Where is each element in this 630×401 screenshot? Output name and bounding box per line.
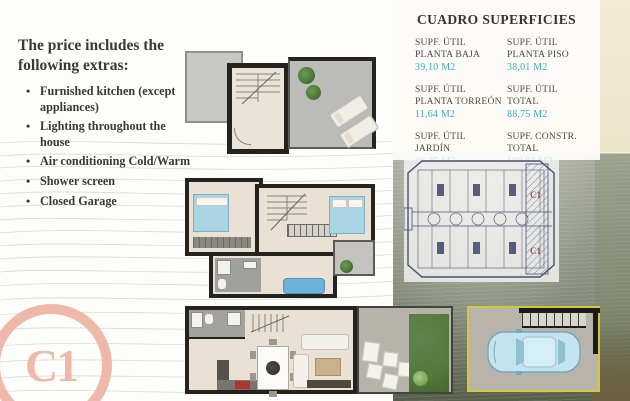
entry-bathroom xyxy=(189,310,245,339)
paver-tile xyxy=(382,351,398,367)
sink-icon xyxy=(243,261,257,269)
extras-item: Furnished kitchen (except appliances) xyxy=(26,84,194,115)
paver-tile xyxy=(366,363,383,380)
garage-wall xyxy=(593,308,598,354)
surface-cell-planta-piso: SUPF. ÚTIL PLANTA PISO 38,01 M2 xyxy=(507,37,595,73)
chair-icon xyxy=(269,391,277,397)
bath-and-hall xyxy=(209,252,337,298)
surfaces-table: SUPF. ÚTIL PLANTA BAJA 39,10 M2 SUPF. ÚT… xyxy=(393,28,600,167)
extras-item: Lighting throughout the house xyxy=(26,119,194,150)
surface-value: 39,10 M2 xyxy=(415,62,503,73)
car-icon xyxy=(486,329,582,375)
sofa-icon xyxy=(301,334,349,350)
tv-bench-icon xyxy=(307,380,351,388)
plant-icon xyxy=(298,67,315,84)
shower-icon xyxy=(217,260,231,275)
roof-terrace-right xyxy=(288,57,376,149)
floorplan-ground-floor xyxy=(185,302,457,396)
garden-court xyxy=(357,306,453,394)
chair-icon xyxy=(250,373,256,381)
garage-plan xyxy=(467,306,600,392)
door-arc-icon xyxy=(234,128,251,145)
extras-list: Furnished kitchen (except appliances) Li… xyxy=(18,84,194,209)
c1-logo: C1 xyxy=(0,304,112,401)
site-plan-unit-label: C1 xyxy=(530,246,541,256)
surfaces-table-panel: CUADRO SUPERFICIES SUPF. ÚTIL PLANTA BAJ… xyxy=(393,0,600,160)
bedroom-left xyxy=(185,178,263,256)
surface-value: 11,64 M2 xyxy=(415,109,503,120)
sofa-icon xyxy=(283,278,325,294)
plant-icon xyxy=(413,371,428,386)
surface-value: 88,75 M2 xyxy=(507,109,595,120)
site-plan-blueprint: C1 C1 xyxy=(404,156,559,282)
coffee-table-icon xyxy=(315,358,341,376)
surface-cell-planta-baja: SUPF. ÚTIL PLANTA BAJA 39,10 M2 xyxy=(415,37,503,73)
extras-item: Closed Garage xyxy=(26,194,194,210)
stairs-icon xyxy=(522,313,586,328)
stairs-icon xyxy=(232,68,284,108)
surface-cell-torreon: SUPF. ÚTIL PLANTA TORREÓN 11,64 M2 xyxy=(415,84,503,120)
torreon-room xyxy=(227,63,289,154)
chair-icon xyxy=(269,339,277,345)
c1-logo-text: C1 xyxy=(25,339,77,392)
brochure-page: The price includes the following extras:… xyxy=(0,0,630,401)
centerpiece-plant-icon xyxy=(266,361,280,375)
plant-icon xyxy=(340,260,353,273)
dining-table-icon xyxy=(257,346,289,390)
sky-strip xyxy=(595,0,630,153)
site-plan-unit-label: C1 xyxy=(530,190,541,200)
cooktop-icon xyxy=(235,381,250,389)
surface-value: 38,01 M2 xyxy=(507,62,595,73)
bench-icon xyxy=(193,237,251,248)
floorplan-torreon xyxy=(183,40,375,162)
ground-floor-interior xyxy=(185,306,357,394)
extras-item: Shower screen xyxy=(26,174,194,190)
washer-icon xyxy=(227,312,241,326)
extras-item: Air conditioning Cold/Warm xyxy=(26,154,194,170)
balcony-terrace xyxy=(333,240,375,276)
surface-cell-util-total: SUPF. ÚTIL TOTAL 88,75 M2 xyxy=(507,84,595,120)
bed-icon xyxy=(329,196,365,234)
garden-grass xyxy=(409,314,449,392)
bathroom xyxy=(215,258,261,292)
extras-heading: The price includes the following extras: xyxy=(18,36,194,77)
toilet-icon xyxy=(218,279,226,289)
included-extras-block: The price includes the following extras:… xyxy=(18,36,194,213)
chair-icon xyxy=(250,351,256,359)
bed-icon xyxy=(193,194,229,232)
paver-tile xyxy=(362,341,381,363)
floorplan-first-floor xyxy=(183,170,377,300)
shower-icon xyxy=(191,312,203,328)
plant-icon xyxy=(306,85,321,100)
surfaces-table-title: CUADRO SUPERFICIES xyxy=(393,12,600,28)
toilet-icon xyxy=(205,314,213,324)
stairs-icon xyxy=(249,310,293,336)
